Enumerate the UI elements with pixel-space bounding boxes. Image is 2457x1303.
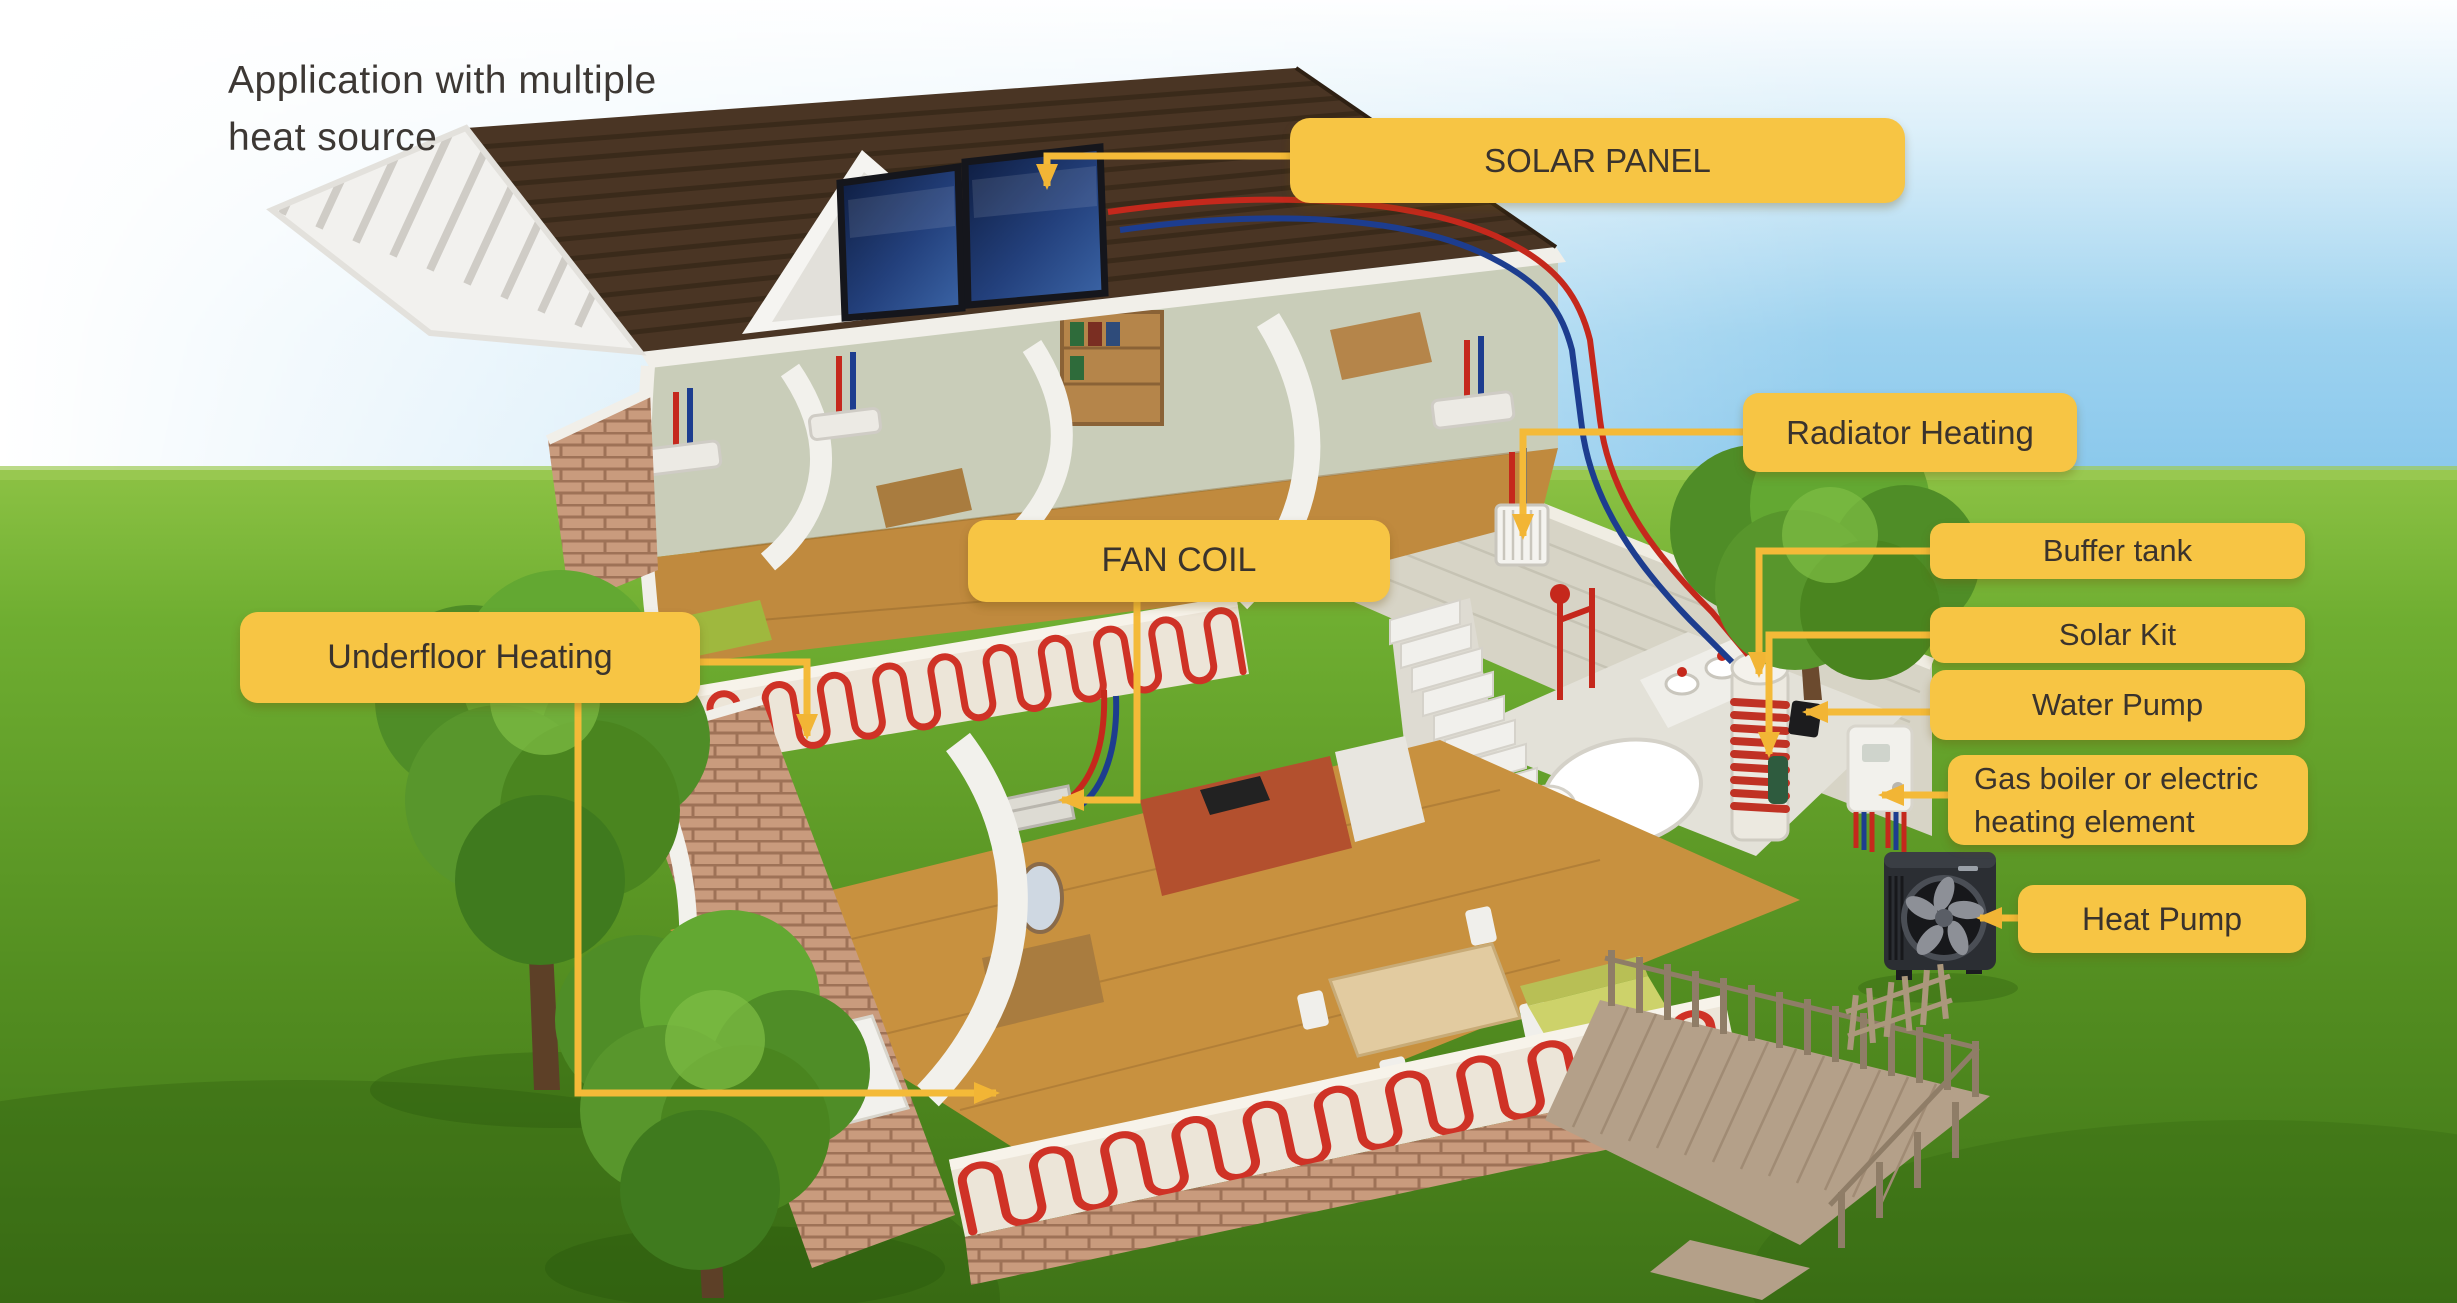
label-buffer-tank-text: Buffer tank: [2043, 533, 2192, 569]
label-gas-boiler-line2: heating element: [1974, 800, 2195, 843]
label-gas-boiler-line1: Gas boiler or electric: [1974, 757, 2258, 800]
label-radiator-heating-text: Radiator Heating: [1786, 414, 2034, 452]
solar-kit-unit: [1768, 756, 1788, 804]
title-line-1: Application with multiple: [228, 59, 657, 102]
label-water-pump-text: Water Pump: [2032, 687, 2203, 723]
label-solar-kit: Solar Kit: [1930, 607, 2305, 663]
label-gas-boiler: Gas boiler or electric heating element: [1948, 755, 2308, 845]
label-underfloor-heating-text: Underfloor Heating: [327, 638, 612, 677]
label-radiator-heating: Radiator Heating: [1743, 393, 2077, 472]
label-solar-panel: SOLAR PANEL: [1290, 118, 1905, 203]
label-buffer-tank: Buffer tank: [1930, 523, 2305, 579]
diagram-page: Application with multiple heat source SO…: [0, 0, 2457, 1303]
label-water-pump: Water Pump: [1930, 670, 2305, 740]
label-solar-kit-text: Solar Kit: [2059, 617, 2176, 653]
page-title: Application with multiple heat source: [228, 52, 657, 166]
label-solar-panel-text: SOLAR PANEL: [1484, 142, 1711, 180]
buffer-tank-unit: [1732, 652, 1788, 840]
label-heat-pump-text: Heat Pump: [2082, 901, 2242, 938]
label-fan-coil: FAN COIL: [968, 520, 1390, 602]
bookshelf: [1062, 312, 1162, 424]
heat-pump-unit: [1884, 852, 1996, 980]
label-underfloor-heating: Underfloor Heating: [240, 612, 700, 703]
brand-mark: [1958, 866, 1978, 871]
label-heat-pump: Heat Pump: [2018, 885, 2306, 953]
label-fan-coil-text: FAN COIL: [1102, 541, 1257, 580]
shower-head: [1550, 584, 1570, 604]
title-line-2: heat source: [228, 116, 437, 159]
water-pump-unit: [1788, 700, 1822, 738]
